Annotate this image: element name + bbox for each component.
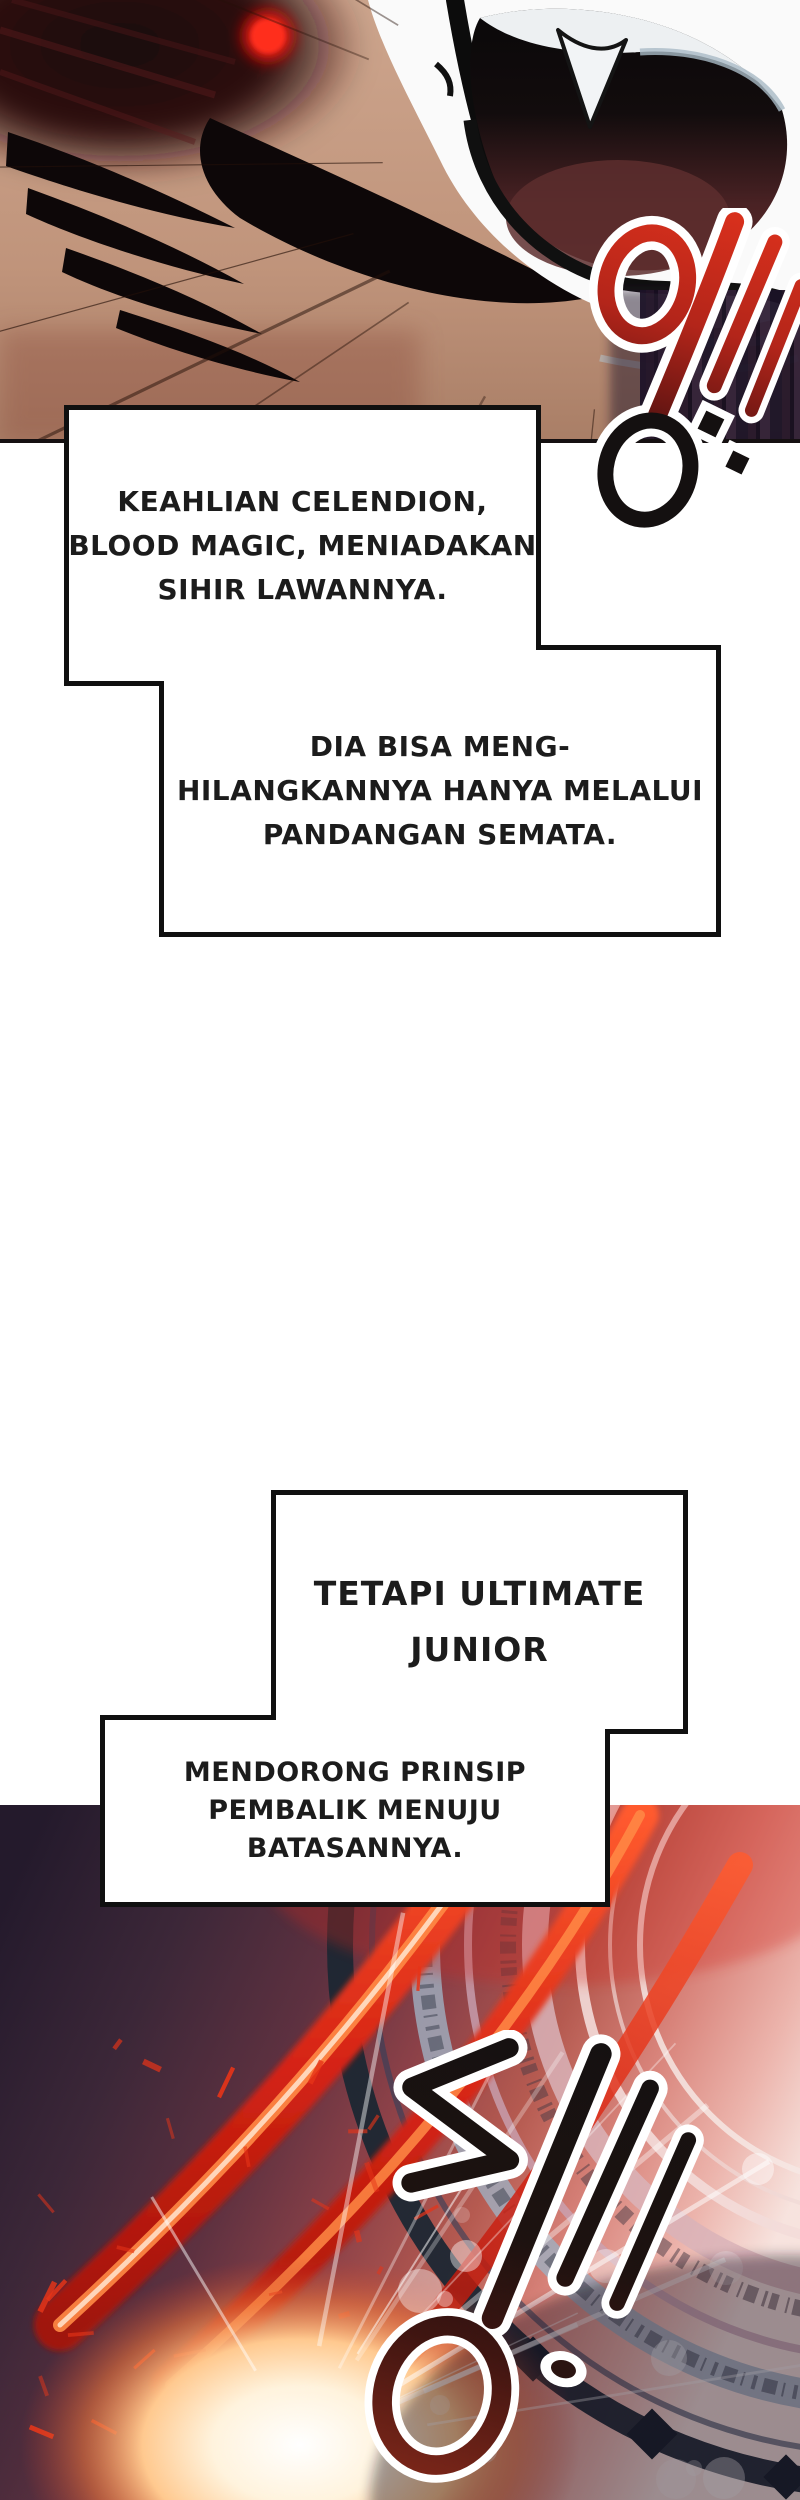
sfx-clang [330,2030,710,2500]
sfx-scream [568,208,800,542]
narration-line: MENDORONG PRINSIP [184,1754,526,1792]
narration-line: KEAHLIAN CELENDION, [117,480,487,524]
narration-text-1: KEAHLIAN CELENDION, BLOOD MAGIC, MENIADA… [64,405,541,686]
narration-line: DIA BISA MENG- [310,725,570,769]
narration-line: PANDANGAN SEMATA. [263,813,617,857]
webtoon-page: KEAHLIAN CELENDION, BLOOD MAGIC, MENIADA… [0,0,800,2500]
narration-text-3: TETAPI ULTIMATE JUNIOR [271,1500,688,1744]
narration-line: PEMBALIK MENUJU [208,1792,501,1830]
narration-line: JUNIOR [410,1622,548,1678]
narration-line: SIHIR LAWANNYA. [157,568,447,612]
narration-line: TETAPI ULTIMATE [314,1566,646,1622]
narration-text-2: DIA BISA MENG- HILANGKANNYA HANYA MELALU… [159,645,721,937]
narration-line: BATASANNYA. [247,1830,463,1868]
narration-line: HILANGKANNYA HANYA MELALUI [177,769,703,813]
narration-line: BLOOD MAGIC, MENIADAKAN [68,524,536,568]
narration-text-4: MENDORONG PRINSIP PEMBALIK MENUJU BATASA… [100,1715,610,1907]
